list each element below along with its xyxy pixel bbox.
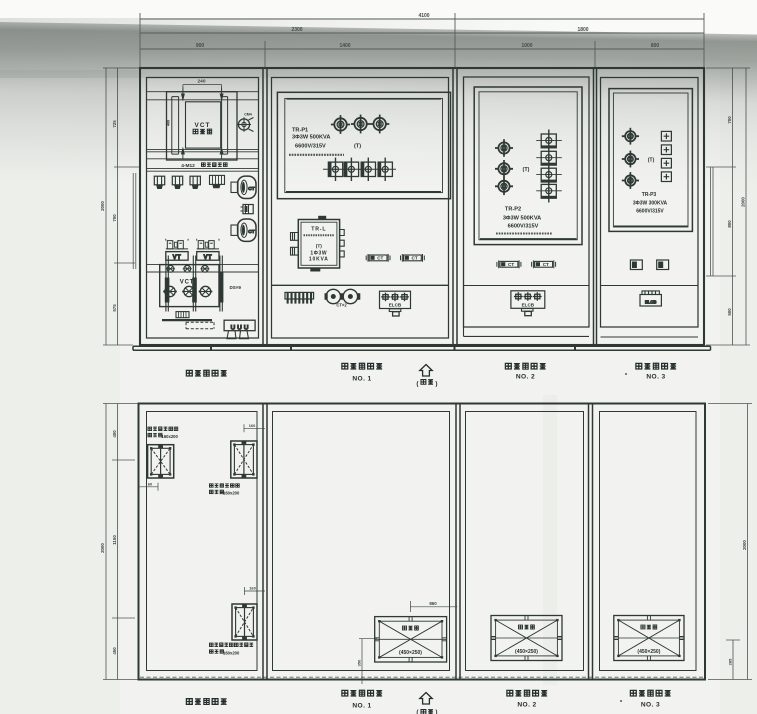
svg-text:(T): (T)	[316, 244, 323, 250]
svg-text:160x200: 160x200	[223, 491, 240, 496]
svg-text:ELCB: ELCB	[522, 302, 535, 307]
svg-text:1400: 1400	[339, 43, 350, 49]
svg-text:CT: CT	[412, 256, 418, 261]
svg-text:NO. 1: NO. 1	[352, 376, 371, 383]
svg-text:3Φ3W 500KVA: 3Φ3W 500KVA	[503, 215, 541, 221]
svg-text:6600V/315V: 6600V/315V	[508, 224, 539, 230]
svg-text:500: 500	[727, 308, 732, 316]
svg-text:2000: 2000	[100, 201, 105, 211]
svg-text:NO. 2: NO. 2	[517, 702, 536, 709]
svg-text:): )	[435, 709, 437, 714]
svg-text:285: 285	[728, 658, 733, 665]
svg-text:ELCB: ELCB	[645, 299, 656, 304]
svg-text:6600V/315V: 6600V/315V	[636, 208, 664, 214]
svg-text:400: 400	[112, 430, 117, 438]
svg-text:10KVA: 10KVA	[309, 256, 329, 262]
svg-text:60: 60	[148, 481, 152, 486]
svg-text:ELCB: ELCB	[389, 303, 402, 308]
svg-text:160: 160	[249, 586, 256, 591]
svg-text:3Φ3W 300KVA: 3Φ3W 300KVA	[633, 201, 668, 207]
svg-text:6600V/315V: 6600V/315V	[295, 143, 326, 149]
svg-text:400: 400	[167, 120, 171, 126]
svg-text:CT: CT	[543, 262, 549, 267]
svg-text:NO. 2: NO. 2	[516, 374, 535, 381]
svg-text:CT: CT	[508, 262, 514, 267]
svg-text:CT: CT	[248, 229, 254, 235]
svg-text:900: 900	[196, 43, 205, 49]
svg-text:700: 700	[727, 116, 732, 124]
svg-text:(450×250): (450×250)	[637, 649, 660, 655]
svg-text:NO. 3: NO. 3	[641, 702, 660, 709]
svg-text:160x200: 160x200	[162, 434, 179, 439]
svg-text:2000: 2000	[742, 540, 747, 550]
svg-text:CT: CT	[377, 256, 383, 261]
svg-text:VT: VT	[203, 255, 212, 261]
svg-text:VT: VT	[173, 255, 182, 261]
svg-text:700: 700	[112, 214, 117, 222]
svg-text:160x200: 160x200	[223, 650, 240, 655]
svg-text:(450×250): (450×250)	[515, 649, 538, 655]
svg-text:1000: 1000	[521, 43, 532, 49]
svg-text:NO. 3: NO. 3	[646, 374, 665, 381]
svg-text:CM4: CM4	[244, 113, 252, 117]
svg-text:800: 800	[727, 220, 732, 228]
svg-text:1150: 1150	[112, 535, 117, 545]
svg-text:2300: 2300	[291, 27, 302, 33]
svg-text:VCT: VCT	[194, 122, 210, 129]
svg-text:NO. 1: NO. 1	[352, 703, 371, 710]
svg-text:575: 575	[112, 304, 117, 312]
svg-text:DS×9: DS×9	[230, 285, 242, 290]
svg-text:VCT: VCT	[180, 280, 194, 286]
svg-text:(450×250): (450×250)	[399, 650, 422, 656]
svg-text:350: 350	[356, 659, 361, 666]
svg-text:4100: 4100	[418, 13, 429, 19]
svg-text:2000: 2000	[100, 543, 105, 553]
svg-text:2000: 2000	[741, 197, 746, 207]
svg-text:450: 450	[112, 647, 117, 655]
svg-text:1800: 1800	[577, 27, 588, 33]
svg-text:800: 800	[651, 43, 660, 49]
svg-text:): )	[435, 381, 437, 388]
svg-text:TR-L: TR-L	[311, 226, 326, 232]
svg-text:725: 725	[112, 120, 117, 128]
svg-text:TR-P3: TR-P3	[642, 192, 657, 198]
svg-text:(T): (T)	[523, 167, 530, 173]
svg-text:3Φ3W 500KVA: 3Φ3W 500KVA	[292, 135, 330, 141]
svg-text:160: 160	[249, 423, 256, 428]
svg-text:CT: CT	[248, 186, 254, 192]
svg-text:TR-P1: TR-P1	[292, 128, 308, 134]
svg-text:TR-P2: TR-P2	[505, 207, 521, 213]
svg-text:240: 240	[197, 79, 205, 85]
svg-text:(T): (T)	[648, 158, 655, 164]
svg-text:U U U: U U U	[231, 324, 249, 331]
svg-text:(T): (T)	[354, 143, 361, 149]
svg-text:860: 860	[429, 601, 437, 606]
svg-text:CT×2: CT×2	[336, 302, 347, 307]
svg-text:4-M12: 4-M12	[181, 163, 195, 169]
